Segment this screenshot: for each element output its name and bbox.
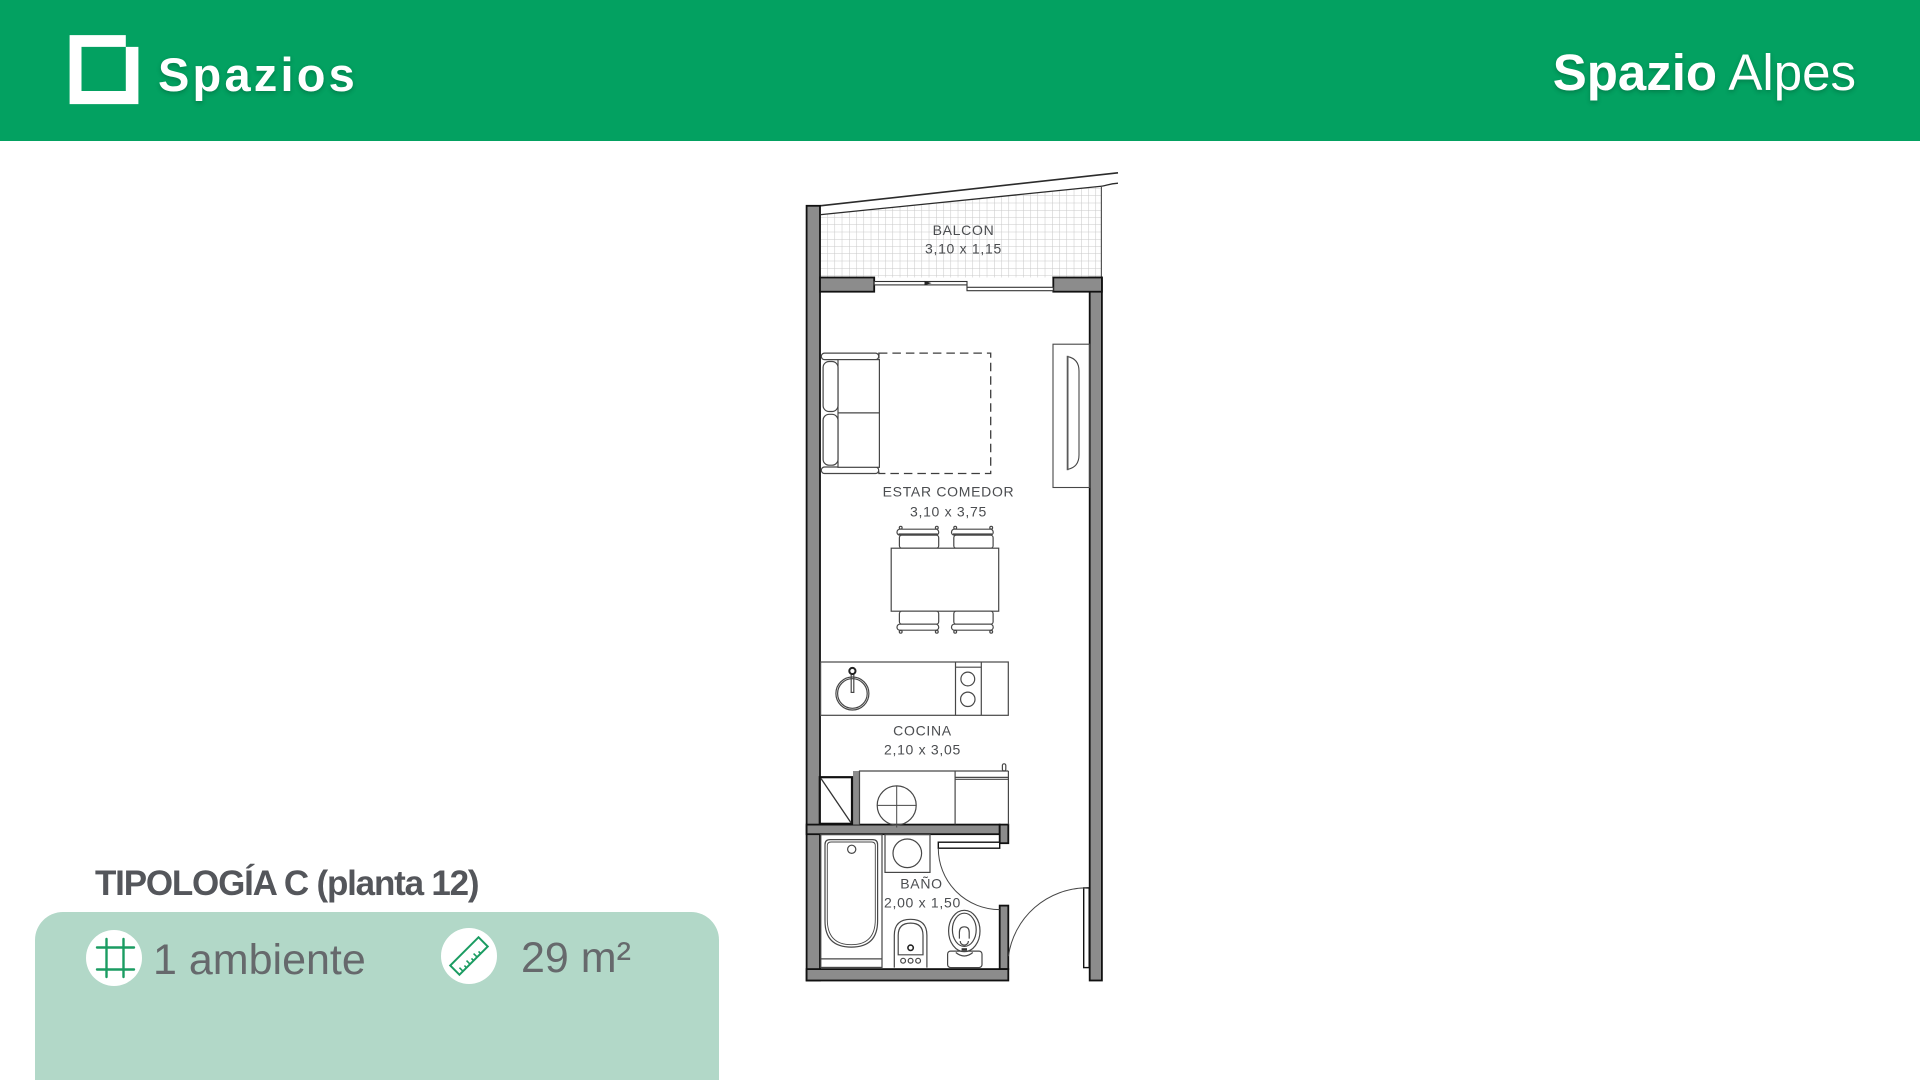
svg-text:BAÑO: BAÑO [900,876,942,892]
svg-text:2,00 x 1,50: 2,00 x 1,50 [884,895,961,911]
svg-text:2,10 x 3,05: 2,10 x 3,05 [884,742,961,758]
svg-text:ESTAR COMEDOR: ESTAR COMEDOR [883,484,1015,500]
svg-text:BALCON: BALCON [933,222,995,238]
svg-text:COCINA: COCINA [893,723,952,739]
svg-text:3,10 x 3,75: 3,10 x 3,75 [910,504,987,520]
svg-text:3,10 x 1,15: 3,10 x 1,15 [925,241,1002,257]
